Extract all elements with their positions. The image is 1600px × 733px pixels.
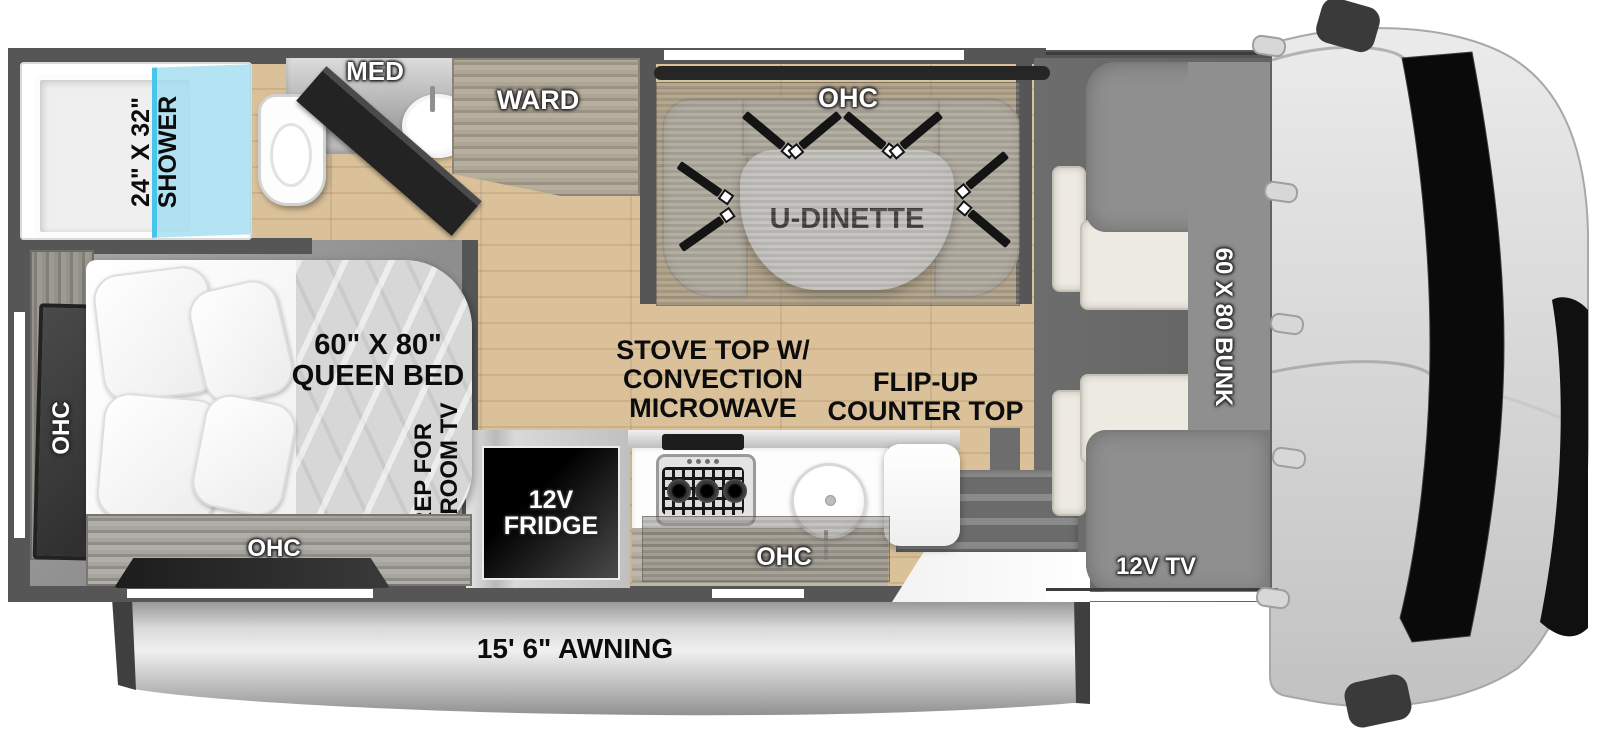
side-mirror-icon [1313,0,1383,55]
stove-knobs [687,459,725,465]
bedroom-ohc-bottom-label: OHC [234,536,314,561]
cab-tv-label: 12V TV [1096,554,1216,579]
kitchen-ohc-label: OHC [744,544,824,570]
marker-light-icon [1271,446,1307,471]
front-top-window [1046,41,1276,50]
floorplan-canvas: 15' 6" AWNING 24" X [0,0,1600,733]
wall-dinette-left [640,58,656,304]
faucet-icon [430,86,435,112]
side-mirror-icon [1342,672,1414,730]
wardrobe-label: WARD [478,86,598,114]
shower-label: 24" X 32" SHOWER [90,67,220,237]
toilet-bowl [270,123,312,187]
front-top-trim [1046,52,1276,55]
awning-label: 15' 6" AWNING [425,634,725,664]
burner-icon [723,479,747,503]
front-fascia [1540,297,1588,636]
wardrobe [452,58,640,196]
stove-label: STOVE TOP W/ CONVECTION MICROWAVE [577,336,849,423]
flipup-counter [884,444,960,546]
dinette-ohc-label: OHC [818,84,878,112]
front-bottom-window [1046,592,1278,601]
burner-icon [695,479,719,503]
range-vent [662,434,744,450]
bedroom-rear-window [114,558,390,588]
marker-light-icon [1255,586,1291,611]
flipup-counter-label: FLIP-UP COUNTER TOP [823,368,1028,426]
awning-left-cap [112,598,136,690]
sink-drain [825,495,836,506]
hood-seam [1272,47,1406,60]
dinette-window [664,50,964,60]
kitchen-window [712,589,804,598]
front-bottom-trim [1046,588,1278,591]
hood-seam [1472,388,1586,432]
dinette-window-shade [654,66,1050,80]
windshield [1400,52,1504,642]
awning-right-cap [1074,598,1090,704]
burner-icon [667,479,691,503]
med-cabinet-label: MED [330,58,420,85]
